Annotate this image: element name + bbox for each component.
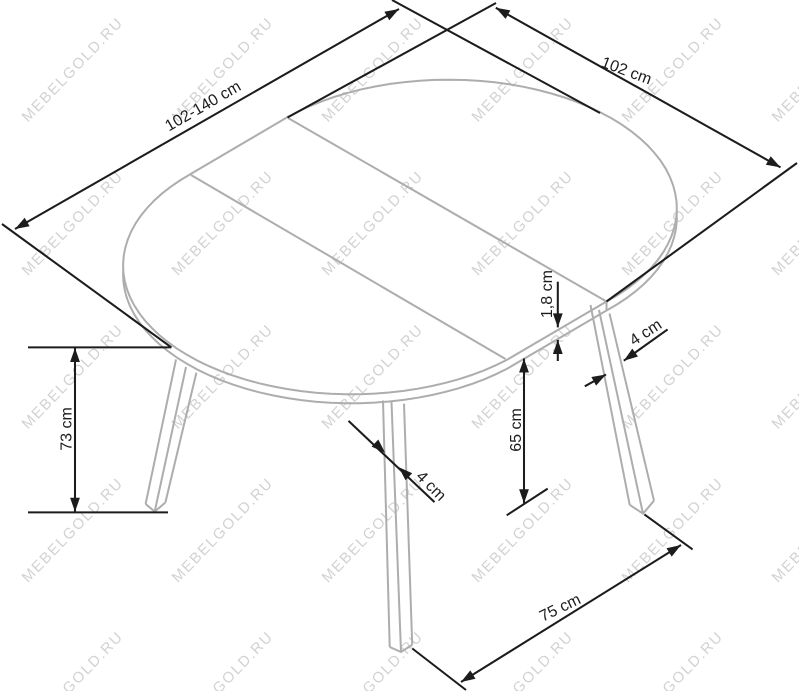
svg-text:MEBELGOLD.RU: MEBELGOLD.RU bbox=[619, 628, 727, 691]
svg-text:73 cm: 73 cm bbox=[58, 407, 75, 451]
svg-text:MEBELGOLD.RU: MEBELGOLD.RU bbox=[319, 168, 427, 279]
svg-text:MEBELGOLD.RU: MEBELGOLD.RU bbox=[469, 628, 577, 691]
svg-text:MEBELGOLD.RU: MEBELGOLD.RU bbox=[319, 475, 427, 586]
svg-text:MEBELGOLD.RU: MEBELGOLD.RU bbox=[19, 475, 127, 586]
svg-text:MEBELGOLD.RU: MEBELGOLD.RU bbox=[769, 475, 799, 586]
svg-text:102 cm: 102 cm bbox=[599, 54, 654, 88]
svg-text:MEBELGOLD.RU: MEBELGOLD.RU bbox=[619, 475, 727, 586]
svg-text:MEBELGOLD.RU: MEBELGOLD.RU bbox=[169, 475, 277, 586]
svg-text:MEBELGOLD.RU: MEBELGOLD.RU bbox=[319, 321, 427, 432]
svg-text:65 cm: 65 cm bbox=[508, 408, 525, 452]
svg-text:MEBELGOLD.RU: MEBELGOLD.RU bbox=[19, 628, 127, 691]
svg-text:MEBELGOLD.RU: MEBELGOLD.RU bbox=[769, 14, 799, 125]
svg-text:MEBELGOLD.RU: MEBELGOLD.RU bbox=[19, 14, 127, 125]
svg-text:1,8 cm: 1,8 cm bbox=[539, 270, 556, 318]
svg-text:MEBELGOLD.RU: MEBELGOLD.RU bbox=[319, 628, 427, 691]
svg-text:MEBELGOLD.RU: MEBELGOLD.RU bbox=[169, 168, 277, 279]
svg-text:MEBELGOLD.RU: MEBELGOLD.RU bbox=[769, 321, 799, 432]
svg-text:MEBELGOLD.RU: MEBELGOLD.RU bbox=[769, 628, 799, 691]
svg-text:MEBELGOLD.RU: MEBELGOLD.RU bbox=[769, 168, 799, 279]
svg-text:MEBELGOLD.RU: MEBELGOLD.RU bbox=[469, 168, 577, 279]
svg-text:MEBELGOLD.RU: MEBELGOLD.RU bbox=[169, 628, 277, 691]
svg-text:MEBELGOLD.RU: MEBELGOLD.RU bbox=[19, 168, 127, 279]
